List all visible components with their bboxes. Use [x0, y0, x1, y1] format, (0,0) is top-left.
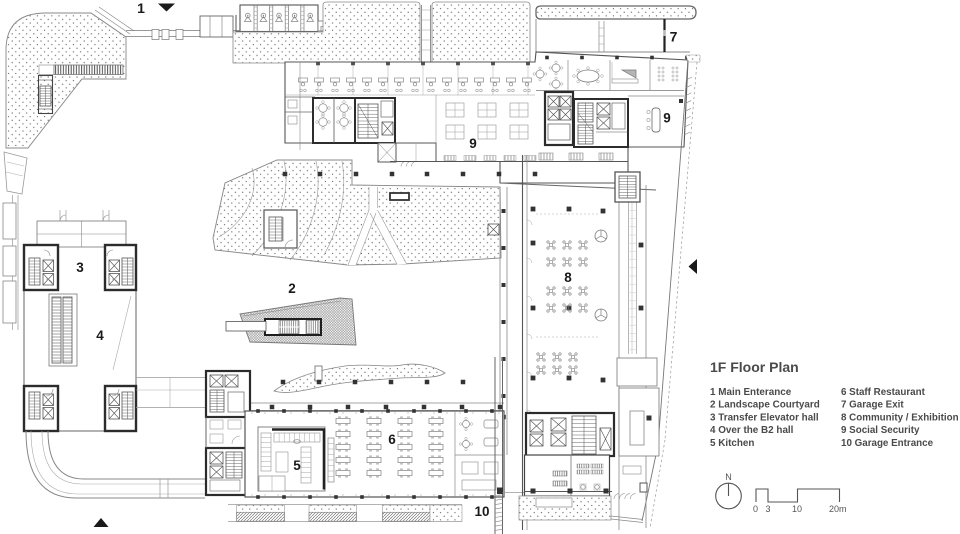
svg-text:2: 2 [288, 281, 296, 296]
svg-text:6: 6 [388, 432, 396, 447]
svg-text:7: 7 [670, 29, 678, 45]
svg-text:3: 3 [76, 260, 84, 275]
svg-text:3 Transfer Elevator hall: 3 Transfer Elevator hall [710, 412, 819, 423]
svg-text:20m: 20m [829, 504, 847, 514]
svg-text:8 Community / Exhibition: 8 Community / Exhibition [841, 412, 959, 423]
svg-text:1 Main Enterance: 1 Main Enterance [710, 387, 792, 398]
svg-text:9 Social Security: 9 Social Security [841, 425, 920, 436]
svg-text:9: 9 [663, 111, 671, 126]
svg-text:1: 1 [137, 0, 145, 16]
svg-text:7 Garage Exit: 7 Garage Exit [841, 400, 904, 411]
svg-text:6 Staff Restaurant: 6 Staff Restaurant [841, 387, 926, 398]
svg-text:4: 4 [96, 328, 104, 343]
svg-text:1F Floor Plan: 1F Floor Plan [710, 359, 799, 375]
svg-text:2 Landscape Courtyard: 2 Landscape Courtyard [710, 400, 820, 411]
svg-text:9: 9 [469, 136, 477, 151]
svg-text:5 Kitchen: 5 Kitchen [710, 438, 754, 449]
svg-text:10: 10 [474, 504, 489, 519]
svg-text:4 Over the B2 hall: 4 Over the B2 hall [710, 425, 794, 436]
svg-text:10 Garage Entrance: 10 Garage Entrance [841, 438, 934, 449]
svg-text:3: 3 [766, 504, 771, 514]
svg-text:8: 8 [564, 270, 572, 285]
svg-text:10: 10 [792, 504, 802, 514]
svg-text:0: 0 [753, 504, 758, 514]
svg-text:N: N [725, 472, 732, 482]
svg-text:5: 5 [293, 458, 301, 473]
